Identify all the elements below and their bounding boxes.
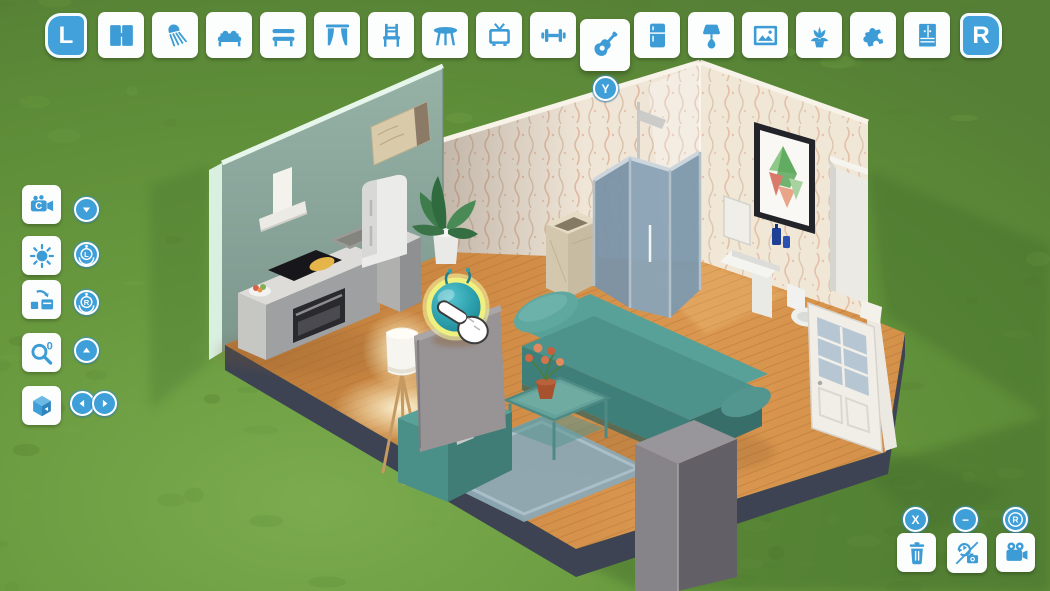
fridge[interactable] — [362, 175, 407, 268]
toolbar-item-tv[interactable] — [476, 12, 522, 58]
y-button-badge: Y — [593, 76, 618, 101]
room-scene — [0, 0, 1050, 591]
y-button-label: Y — [601, 82, 609, 96]
glazed-door[interactable] — [808, 303, 882, 452]
up-arrow-icon — [80, 344, 93, 357]
put-away-icon — [28, 286, 56, 314]
minus-button-label: − — [962, 513, 969, 527]
laundry-basket[interactable] — [546, 211, 598, 298]
down-arrow-badge[interactable] — [74, 197, 99, 222]
double-door-icon — [106, 20, 137, 51]
bed-icon — [214, 20, 245, 51]
right-stick-icon: R — [76, 292, 97, 313]
x-button-label: X — [911, 513, 919, 527]
white-wardrobe[interactable] — [830, 156, 868, 304]
toolbar-item-shelves[interactable] — [260, 12, 306, 58]
left-stick-icon: L — [76, 244, 97, 265]
toolbar-item-misc[interactable] — [850, 12, 896, 58]
left-arrow-icon — [76, 397, 89, 410]
svg-text:R: R — [1012, 515, 1019, 525]
dumbbell-icon — [538, 20, 569, 51]
toolbar-item-table[interactable] — [422, 12, 468, 58]
right-stick-press-badge[interactable]: R — [74, 290, 99, 315]
down-arrow-icon — [80, 203, 93, 216]
picture-icon — [750, 20, 781, 51]
toolbar-item-kitchen[interactable] — [634, 12, 680, 58]
fridge-icon — [642, 20, 673, 51]
x-button-badge: X — [903, 507, 928, 532]
triangle-art-picture[interactable] — [754, 122, 815, 234]
lamp-icon — [696, 20, 727, 51]
toolbar-item-guitar-selected[interactable] — [580, 19, 630, 71]
zoom-icon: 0 — [28, 339, 56, 367]
put-away-button[interactable] — [22, 280, 61, 319]
toolbar-item-wall-decor[interactable] — [742, 12, 788, 58]
plant-icon — [804, 20, 835, 51]
camera-mode-button[interactable]: C — [22, 185, 61, 224]
chair-icon — [376, 20, 407, 51]
right-bumper-button[interactable]: R — [960, 13, 1002, 58]
svg-text:R: R — [84, 298, 90, 307]
toolbar-item-storage[interactable] — [904, 12, 950, 58]
toolbar-item-curtains[interactable] — [314, 12, 360, 58]
toolbar-item-lighting[interactable] — [688, 12, 734, 58]
toolbar-item-fitness[interactable] — [530, 12, 576, 58]
rotate-view-icon — [28, 392, 56, 420]
toolbar-item-chair[interactable] — [368, 12, 414, 58]
zoom-button[interactable]: 0 — [22, 333, 61, 372]
toolbar-item-shower[interactable] — [152, 12, 198, 58]
photo-video-toggle-button[interactable] — [947, 533, 987, 573]
rotate-view-button[interactable] — [22, 386, 61, 425]
dresser-icon — [912, 20, 943, 51]
guitar-icon — [587, 27, 623, 63]
left-bumper-button[interactable]: L — [45, 13, 87, 58]
r-ring-icon: R — [1005, 509, 1026, 530]
up-arrow-badge[interactable] — [74, 338, 99, 363]
toolbar-item-doors[interactable] — [98, 12, 144, 58]
gray-cabinet[interactable] — [635, 420, 737, 591]
camera-mode-icon: C — [28, 191, 56, 219]
wall-shelf[interactable] — [724, 196, 750, 245]
trash-icon — [903, 539, 931, 567]
right-arrow-badge[interactable] — [92, 391, 117, 416]
svg-text:C: C — [35, 201, 42, 212]
toolbar-item-bed[interactable] — [206, 12, 252, 58]
daylight-button[interactable] — [22, 236, 61, 275]
record-video-button[interactable] — [996, 533, 1035, 572]
left-stick-press-badge[interactable]: L — [74, 242, 99, 267]
record-video-icon — [1002, 539, 1030, 567]
r-button-badge: R — [1003, 507, 1028, 532]
svg-text:L: L — [84, 250, 89, 259]
table-icon — [430, 20, 461, 51]
curtains-icon — [322, 20, 353, 51]
right-arrow-icon — [98, 397, 111, 410]
photo-video-toggle-icon — [953, 539, 981, 567]
game-screen: L R Y C L R 0 X − R — [0, 0, 1050, 591]
trash-button[interactable] — [897, 533, 936, 572]
sun-icon — [28, 242, 56, 270]
shelf-icon — [268, 20, 299, 51]
svg-text:0: 0 — [46, 340, 52, 352]
puzzle-icon — [858, 20, 889, 51]
shower-icon — [160, 20, 191, 51]
toolbar-item-plants[interactable] — [796, 12, 842, 58]
minus-button-badge: − — [953, 507, 978, 532]
tv-icon — [484, 20, 515, 51]
